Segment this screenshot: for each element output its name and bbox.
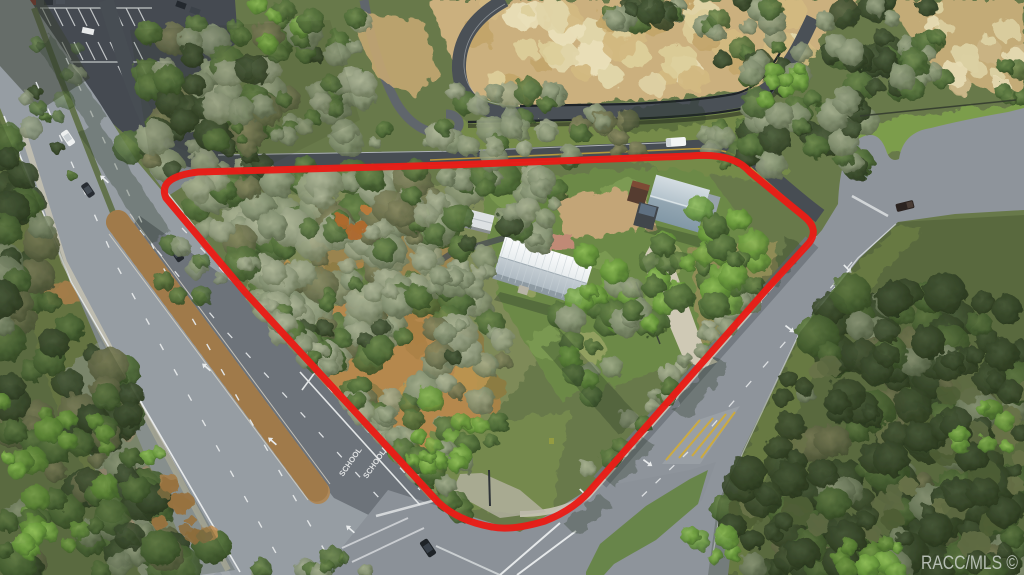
svg-text:RACC/MLS ©: RACC/MLS © bbox=[921, 553, 1018, 574]
